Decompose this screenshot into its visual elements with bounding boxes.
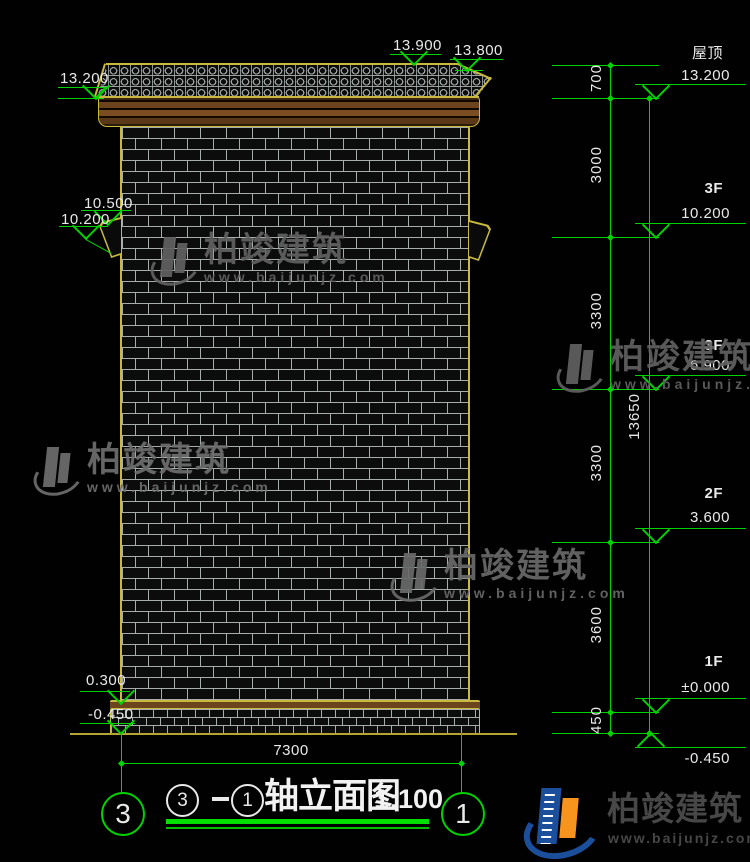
axis-bubble-3: 3 (101, 792, 145, 836)
watermark: 柏竣建筑 www.baijunjz.com (390, 549, 629, 601)
roof-edge-top (106, 63, 459, 65)
logo-url: www.baijunjz.com (608, 831, 750, 845)
floor-elev-roof: 13.200 (630, 68, 730, 83)
title-underline-thin (166, 827, 429, 829)
axis-bubble-1-number: 1 (455, 798, 471, 830)
cornice-band (98, 97, 480, 127)
floor-label-3f: 3F (628, 181, 723, 196)
extension-line (552, 237, 659, 238)
watermark-brand: 柏竣建筑 (87, 443, 272, 477)
sill-band (110, 700, 480, 709)
watermark: 柏竣建筑 www.baijunjz.com (33, 443, 272, 495)
title-axis-start: 3 (177, 790, 188, 812)
roof-tile-band (97, 64, 492, 97)
watermark-url: www.baijunjz.com (204, 270, 389, 284)
watermark-building-icon (33, 443, 79, 495)
floor-elev-0000: ±0.000 (630, 680, 730, 695)
chain-dim-700: 700 (589, 64, 604, 92)
watermark-url: www.baijunjz.com (87, 480, 272, 494)
logo-brand: 柏竣建筑 (607, 792, 743, 825)
title-axis-start-bubble: 3 (166, 784, 199, 817)
watermark: 柏竣建筑 www.baijunjz.com (556, 340, 750, 392)
watermark-building-icon (390, 549, 436, 601)
watermark-brand: 柏竣建筑 (444, 549, 629, 583)
dimension-tick (458, 760, 465, 767)
chain-dimension-line (610, 65, 611, 733)
brick-wall (120, 127, 470, 703)
title-underline-thick (166, 819, 429, 824)
floor-label-2f: 2F (628, 486, 723, 501)
chain-dim-3000: 3000 (589, 146, 604, 183)
chain-dim-3600: 3600 (589, 606, 604, 643)
dimension-tick (607, 709, 614, 716)
watermark-url: www.baijunjz.com (444, 586, 629, 600)
ground-line (70, 733, 517, 735)
dimension-tick (607, 730, 614, 737)
watermark: 柏竣建筑 www.baijunjz.com (150, 233, 389, 285)
dimension-tick (118, 760, 125, 767)
watermark-brand: 柏竣建筑 (610, 340, 750, 374)
watermark-url: www.baijunjz.com (610, 377, 750, 391)
drawing-scale: 1:100 (374, 786, 443, 813)
plinth (110, 709, 480, 733)
chain-dim-3300: 3300 (589, 292, 604, 329)
chain-dim-450: 450 (589, 706, 604, 734)
extension-line (552, 98, 659, 99)
watermark-brand: 柏竣建筑 (204, 233, 389, 267)
logo-building-icon (523, 786, 603, 856)
watermark-building-icon (556, 340, 602, 392)
floor-label-1f: 1F (628, 654, 723, 669)
axis-bubble-3-number: 3 (115, 798, 131, 830)
floor-label-roof: 屋顶 (628, 46, 723, 61)
extension-line (552, 542, 659, 543)
dimension-tick (607, 539, 614, 546)
watermark-building-icon (150, 233, 196, 285)
title-dash (212, 797, 229, 801)
company-logo: 柏竣建筑 www.baijunjz.com (523, 786, 748, 856)
dimension-tick (607, 62, 614, 69)
overall-dim-13650: 13650 (627, 393, 642, 440)
floor-elev-neg0450: -0.450 (630, 751, 730, 766)
bottom-dimension-line (121, 763, 462, 764)
dimension-tick (607, 95, 614, 102)
extension-line (552, 712, 659, 713)
chain-dim-3300b: 3300 (589, 444, 604, 481)
elevation-drawing: 13.200 13.900 13.800 10.500 10.200 0.300… (0, 0, 750, 862)
floor-elev-3f: 10.200 (630, 206, 730, 221)
dimension-tick (607, 234, 614, 241)
title-axis-end-bubble: 1 (231, 784, 264, 817)
extension-line (552, 733, 659, 734)
axis-bubble-1: 1 (441, 792, 485, 836)
bottom-dim-value: 7300 (256, 743, 326, 758)
floor-elev-3600: 3.600 (630, 510, 730, 525)
title-axis-end: 1 (242, 790, 253, 812)
extension-line (552, 65, 659, 66)
